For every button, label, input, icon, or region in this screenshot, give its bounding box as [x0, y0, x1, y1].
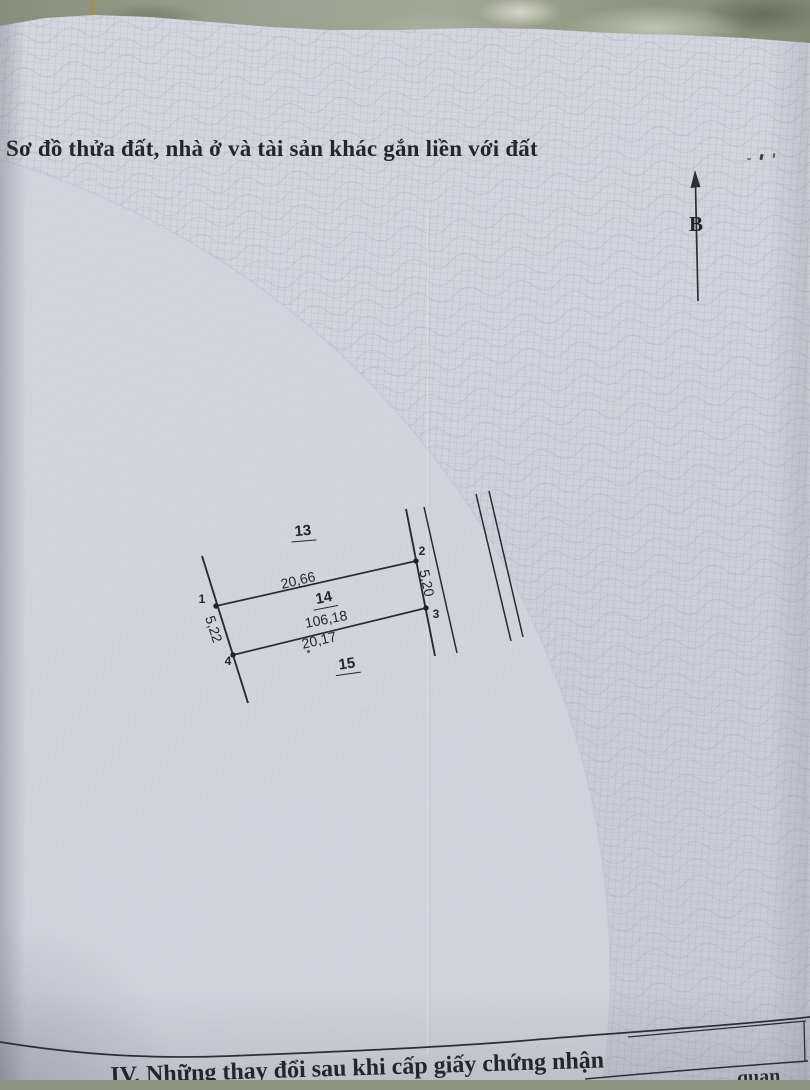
table-row-top-rule	[628, 1021, 806, 1037]
table-right-border	[804, 1021, 805, 1062]
photographed-certificate-page: { "document": { "title": "Sơ đồ thửa đất…	[0, 0, 810, 1080]
section-top-rule	[0, 1017, 810, 1057]
document-page: Sơ đồ thửa đất, nhà ở và tài sản khác gắ…	[0, 0, 810, 1080]
section-divider-lines	[0, 0, 810, 1080]
clipped-right-column-text: quan	[736, 1065, 781, 1090]
